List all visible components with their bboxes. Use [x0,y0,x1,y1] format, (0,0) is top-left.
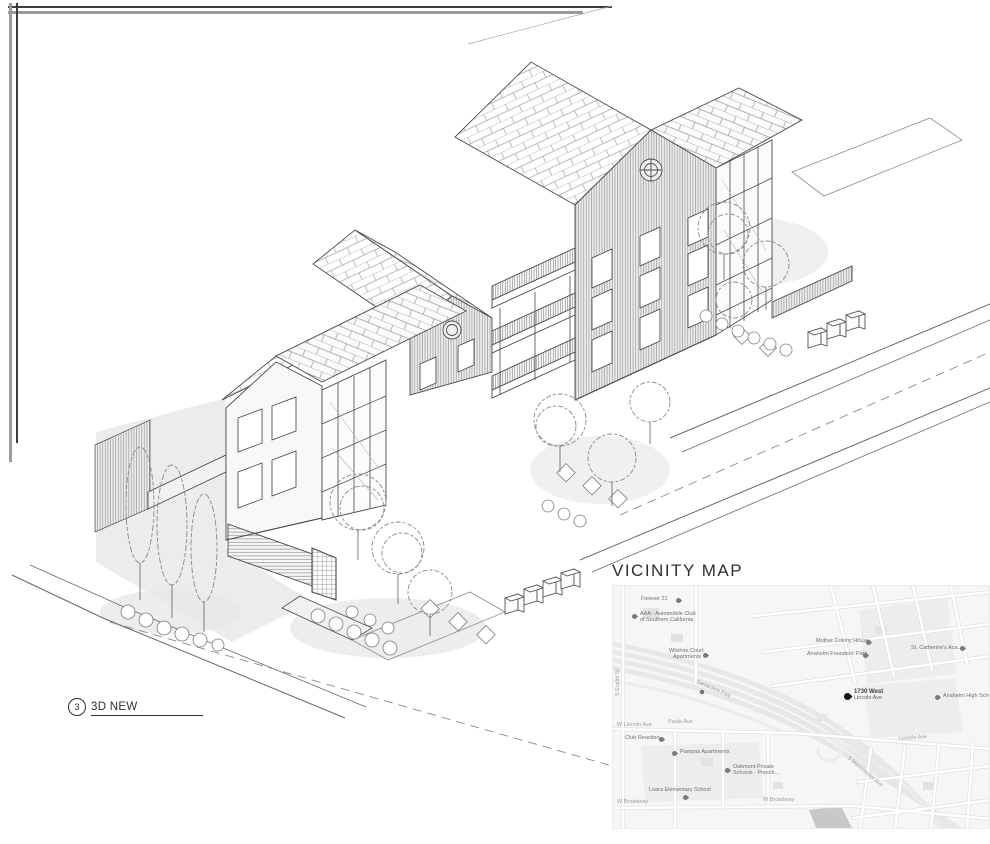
street-label: W Broadway [763,798,794,804]
drawing-callout: 3 3D NEW [68,698,203,716]
street-label: W Lincoln Ave [617,723,652,729]
poi-label: Schools - Presch... [733,771,779,777]
poi-label: Loara Elementary School [649,788,711,794]
gable-medallion-rear [640,159,662,181]
poi-label: Apartments [673,655,701,661]
poi-label: Anaheim Founders' Park [807,652,867,658]
vicinity-map-title: VICINITY MAP [612,561,743,581]
poi-label: Anaheim High School [943,694,990,700]
glass-corner-front [322,360,386,520]
balcony-walkways [492,248,575,398]
poi-label: Pampas Apartments [680,750,730,756]
street-label: W Broadway [617,800,648,806]
poi-label: of Southern California [640,618,693,624]
drawing-number-bubble: 3 [68,698,86,716]
site-pin-label: Lincoln Ave [854,696,882,702]
poi-label: Mother Colony House [816,639,869,645]
drawing-sheet: { "sheet": { "drawing_callout": { "numbe… [0,0,990,844]
drawing-title: 3D NEW [91,701,203,716]
vicinity-map-image: W Lincoln Ave Paula Ave Lincoln Ave W Br… [612,585,990,829]
poi-label: Club Reaction [625,736,660,742]
stair-tower-rear [716,140,772,335]
street-label: S Euclid St [616,669,622,696]
street-label: Paula Ave [668,720,693,726]
poi-label: St. Catherine's Aca... [911,646,962,652]
gable-medallion-middle [443,321,461,339]
poi-label: Forever 21 [641,597,668,603]
